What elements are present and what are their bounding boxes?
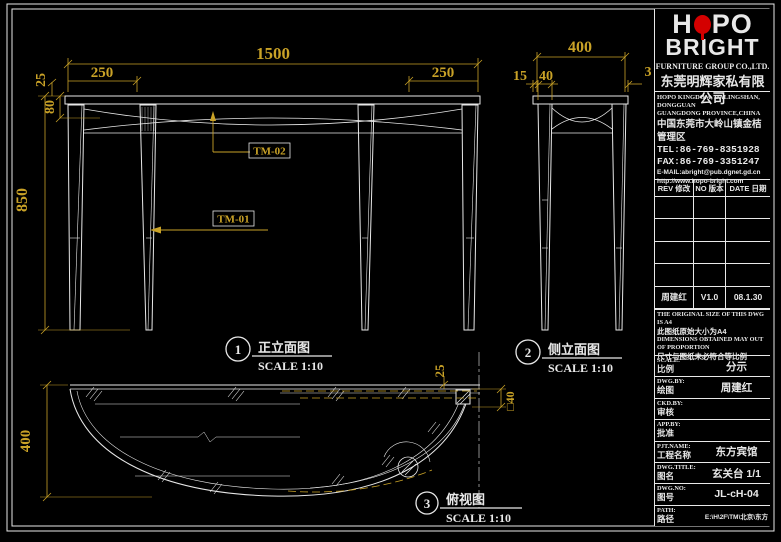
rev-row-cell [694, 264, 726, 286]
field-app-by-value [703, 420, 770, 440]
company-address-block: HOPO KINGDOM, DALINGSHAN, DONGGUAN GUANG… [655, 92, 770, 180]
callout-side-elevation: 2 侧立面图 SCALE 1:10 [516, 340, 622, 375]
dim-side-depth: 400 [568, 39, 592, 56]
callout-plan-view: 3 俯视图 SCALE 1:10 [416, 492, 522, 525]
rev-author: 周建红 [655, 287, 694, 309]
rev-header-date: DATE 日期 [726, 180, 770, 197]
svg-text:TM-01: TM-01 [217, 214, 249, 226]
dim-plan-depth: 400 [18, 430, 34, 453]
field-project-name-value: 东方宾馆 [703, 442, 770, 462]
callout-1-number: 1 [235, 342, 242, 357]
rev-row-cell [655, 219, 694, 241]
cad-drawing-sheet: 1500 250 250 25 80 850 TM-02 TM-01 [0, 0, 781, 542]
callout-2-number: 2 [525, 345, 532, 360]
rev-row-cell [694, 242, 726, 264]
company-email: E-MAIL:abright@pub.dgnet.gd.cn [657, 168, 768, 177]
part-label-tm01: TM-01 [150, 211, 268, 234]
title-block-fields: SCALE: 比例 分示 DWG.BY: 绘图 周建红 CKD.BY: 审核 [655, 356, 770, 526]
title-block: H PO BRIGHT FURNITURE GROUP CO.,LTD. 东莞明… [654, 9, 770, 526]
note-line: DIMENSIONS OBTAINED MAY OUT [657, 336, 768, 344]
dim-front-height: 850 [14, 188, 31, 212]
field-ckd-by-value [703, 399, 770, 419]
field-project-name: PJT.NAME: 工程名称 东方宾馆 [655, 441, 770, 462]
field-drawing-title: DWG.TITLE: 图名 玄关台 1/1 [655, 462, 770, 483]
note-line: OF PROPORTION [657, 344, 768, 352]
callout-1-scale: SCALE 1:10 [258, 359, 323, 373]
company-fax: FAX:86-769-3351247 [657, 156, 768, 168]
dim-side-edge-offset: 15 [513, 69, 527, 84]
address-en-line2: GUANGDONG PROVINCE,CHINA [657, 110, 768, 118]
callout-2-scale: SCALE 1:10 [548, 361, 613, 375]
rev-date: 08.1.30 [726, 287, 770, 309]
front-elevation-view: 1500 250 250 25 80 850 TM-02 TM-01 [14, 44, 482, 373]
rev-version: V1.0 [694, 287, 726, 309]
field-dwg-by: DWG.BY: 绘图 周建红 [655, 376, 770, 397]
rev-row-cell [726, 264, 770, 286]
dim-side-leg-width: 40 [539, 69, 553, 84]
company-name-en: FURNITURE GROUP CO.,LTD. [655, 61, 770, 73]
rev-row-cell [694, 219, 726, 241]
address-cn: 中国东莞市大岭山镇金桔管理区 [657, 118, 768, 144]
plan-hidden-lines [282, 391, 477, 492]
address-en-line1: HOPO KINGDOM, DALINGSHAN, DONGGUAN [657, 94, 768, 110]
callout-front-elevation: 1 正立面图 SCALE 1:10 [226, 337, 332, 373]
drawing-notes: THE ORIGINAL SIZE OF THIS DWG IS A4 此图纸原… [655, 310, 770, 356]
rev-header-rev: REV 修改 [655, 180, 694, 197]
field-path-value: E:\H\2F\TM\北京\东方 [703, 506, 770, 526]
dim-side-back-gap: 3 [645, 65, 652, 80]
svg-text:TM-02: TM-02 [253, 146, 286, 158]
dim-plan-edge: 25 [432, 364, 447, 378]
field-ckd-by: CKD.BY: 审核 [655, 398, 770, 419]
dim-plan-leg-square: □40 [503, 391, 517, 410]
note-line: 此图纸原始大小为A4 [657, 327, 768, 336]
front-dimension-lines [38, 58, 482, 334]
company-name-cn: 东莞明辉家私有限公司 [655, 73, 770, 92]
logo-text-bright: BRIGHT [665, 36, 759, 58]
field-dwg-by-value: 周建红 [703, 377, 770, 397]
callout-3-title: 俯视图 [446, 492, 485, 507]
rev-row-cell [726, 219, 770, 241]
dim-front-top-thickness: 25 [34, 73, 49, 87]
field-drawing-no: DWG.NO: 图号 JL-cH-04 [655, 483, 770, 504]
company-logo: H PO BRIGHT [655, 9, 770, 61]
field-drawing-title-value: 玄关台 1/1 [703, 463, 770, 483]
field-scale: SCALE: 比例 分示 [655, 356, 770, 376]
side-elevation-view: 400 15 40 3 2 侧立面图 SCALE 1:10 [513, 39, 652, 375]
callout-2-title: 侧立面图 [548, 342, 600, 357]
dim-front-left-overhang: 250 [91, 65, 114, 81]
rev-header-no: NO 版本 [694, 180, 726, 197]
rev-row-cell [655, 264, 694, 286]
callout-1-title: 正立面图 [258, 340, 310, 355]
field-app-by: APP.BY: 批准 [655, 419, 770, 440]
callout-3-scale: SCALE 1:10 [446, 511, 511, 525]
logo-text-h: H [672, 12, 693, 36]
logo-red-circle-icon [694, 15, 711, 34]
rev-row-cell [726, 242, 770, 264]
rev-row-cell [655, 197, 694, 219]
rev-row-cell [726, 197, 770, 219]
dim-front-right-overhang: 250 [432, 65, 455, 81]
rev-row-cell [694, 197, 726, 219]
revision-table: REV 修改 NO 版本 DATE 日期 周建红 V1.0 08.1.30 [655, 180, 770, 310]
note-line: THE ORIGINAL SIZE OF THIS DWG IS A4 [657, 311, 768, 327]
dim-front-width: 1500 [256, 44, 290, 63]
logo-text-po: PO [712, 12, 753, 36]
field-scale-value: 分示 [703, 356, 770, 376]
field-path: PATH: 路径 E:\H\2F\TM\北京\东方 [655, 505, 770, 526]
company-tel: TEL:86-769-8351928 [657, 144, 768, 156]
plan-view: 400 25 □40 3 俯视图 SCALE 1:10 [18, 352, 522, 525]
rev-row-cell [655, 242, 694, 264]
callout-3-number: 3 [424, 496, 431, 511]
dim-front-apron: 80 [43, 100, 58, 114]
field-drawing-no-value: JL-cH-04 [703, 484, 770, 504]
